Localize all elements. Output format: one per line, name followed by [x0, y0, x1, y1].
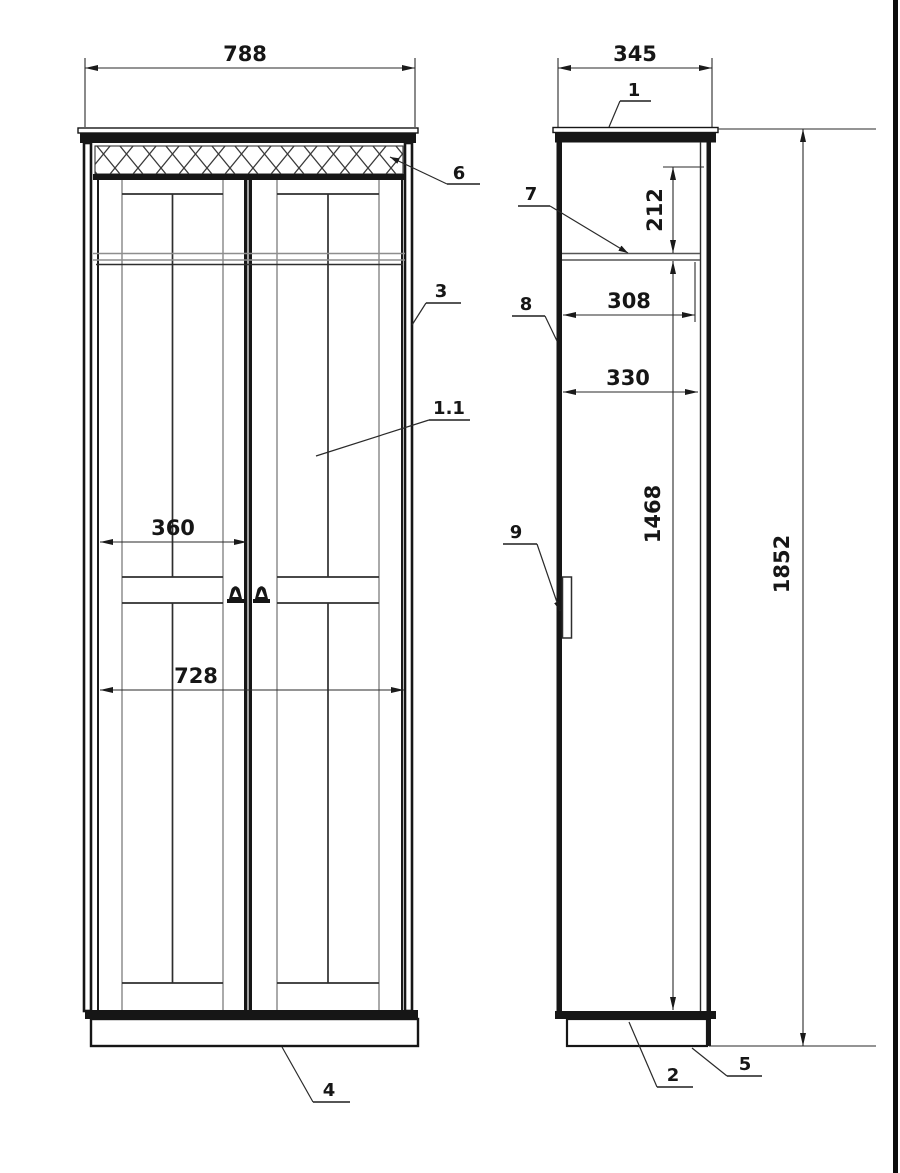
dim-label-330: 330: [606, 366, 650, 390]
callout-label-4: 4: [323, 1080, 336, 1101]
dim-label-345: 345: [613, 42, 657, 66]
door-handles: [227, 586, 270, 603]
callout-plinth-side: 5: [692, 1048, 762, 1076]
callout-handle: 9: [503, 522, 560, 611]
plinth-front: [85, 1010, 418, 1046]
shelf-side: [562, 254, 700, 261]
dim-label-788: 788: [223, 42, 267, 66]
dim-overall-height: 1852: [709, 129, 876, 1046]
callout-label-7: 7: [525, 184, 538, 205]
screen-right-border: [893, 0, 898, 1173]
callout-side-panel-front: 3: [412, 281, 461, 325]
center-stiles: [244, 180, 252, 1010]
side-view: 345 1: [503, 42, 876, 1087]
callout-label-9: 9: [510, 522, 523, 543]
dim-shelf-depth: 308: [563, 262, 695, 322]
front-view: 788: [78, 42, 480, 1102]
callout-door-facade: 1.1: [316, 398, 470, 456]
callout-shelf: 7: [518, 184, 628, 253]
callout-side-panel-side: 8: [512, 294, 557, 341]
dim-label-308: 308: [607, 289, 651, 313]
dim-label-1468: 1468: [641, 485, 665, 543]
right-door-handle: [253, 586, 270, 603]
crown-molding-side: [553, 128, 718, 143]
doors: [93, 180, 405, 1010]
dim-overall-width: 788: [85, 42, 415, 127]
left-door-handle: [227, 586, 244, 603]
dim-label-728: 728: [174, 664, 218, 688]
dim-label-1852: 1852: [770, 535, 794, 593]
drawing-canvas: 788: [0, 0, 900, 1173]
callout-label-5: 5: [739, 1054, 752, 1075]
callout-label-3: 3: [435, 281, 448, 302]
callout-label-8: 8: [520, 294, 533, 315]
dim-interior-depth: 330: [563, 366, 698, 392]
carcass-side: [555, 142, 716, 1046]
callout-label-2: 2: [667, 1065, 680, 1086]
callout-top-panel: 1: [609, 80, 651, 127]
dim-label-360: 360: [151, 516, 195, 540]
frieze-lattice: [93, 146, 405, 180]
handle-side: [563, 577, 572, 638]
callout-label-1-1: 1.1: [433, 398, 465, 419]
dim-label-212: 212: [643, 188, 667, 232]
technical-drawing-wardrobe: 788: [0, 0, 900, 1173]
callout-plinth-front: 4: [282, 1047, 350, 1102]
crown-molding: [78, 128, 418, 143]
callout-label-6: 6: [453, 163, 466, 184]
callout-label-1: 1: [628, 80, 641, 101]
dim-shelf-drop: 212: [643, 167, 673, 253]
